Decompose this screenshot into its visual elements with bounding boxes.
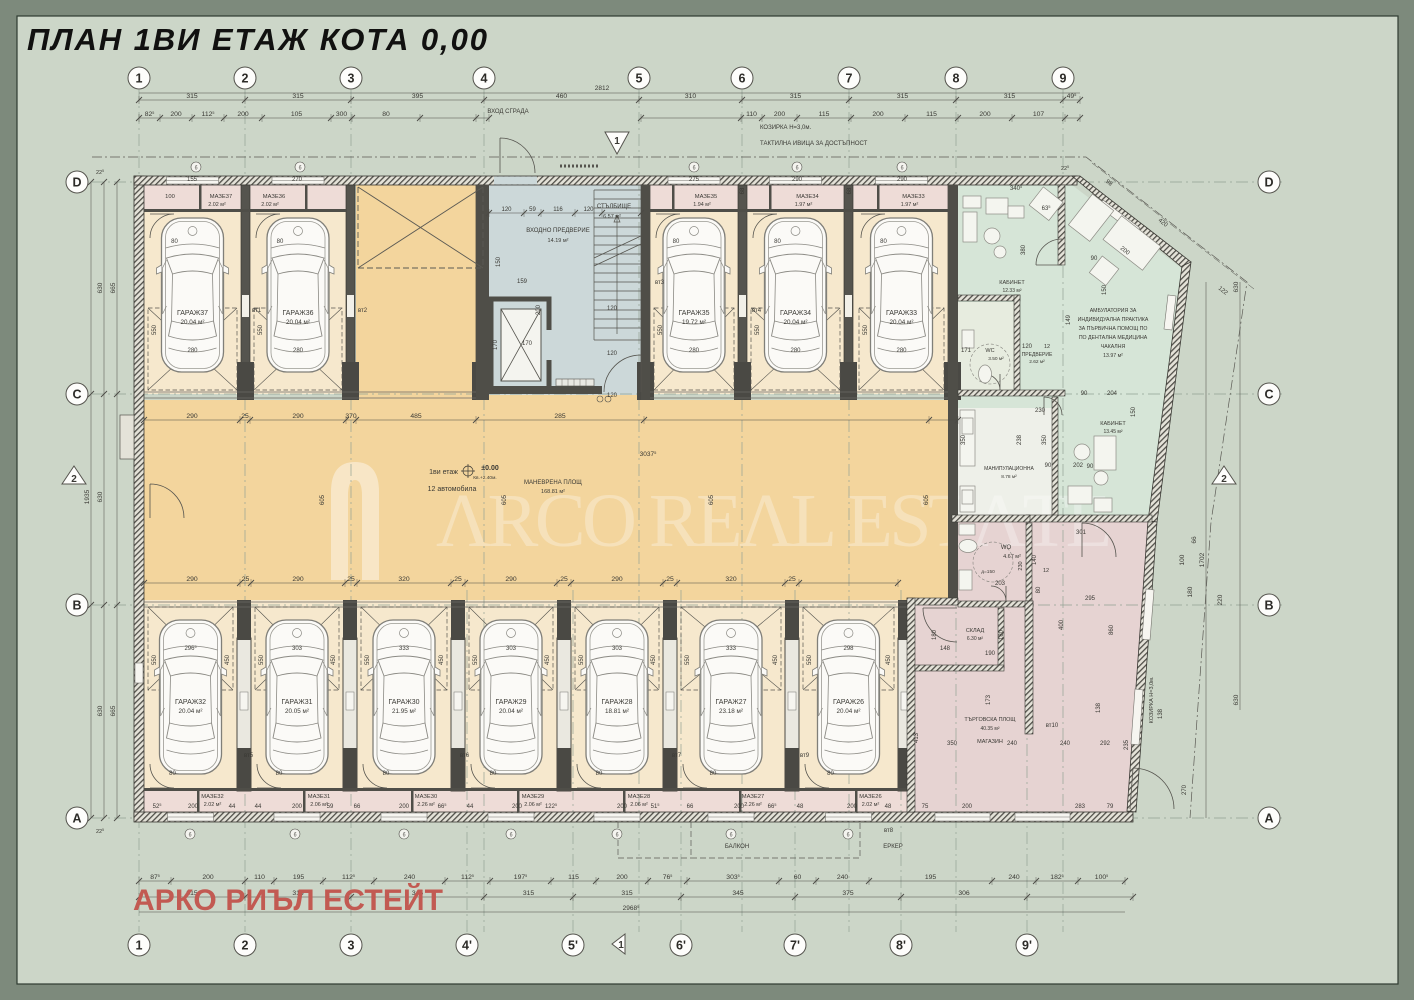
- svg-text:ГАРАЖ35: ГАРАЖ35: [678, 310, 709, 317]
- svg-text:630: 630: [97, 705, 104, 716]
- svg-text:550: 550: [259, 654, 265, 665]
- svg-text:8.78 м²: 8.78 м²: [1001, 474, 1017, 480]
- svg-text:ГАРАЖ36: ГАРАЖ36: [282, 310, 313, 317]
- svg-text:860: 860: [1109, 624, 1115, 635]
- svg-text:315: 315: [790, 93, 802, 100]
- svg-text:450: 450: [545, 654, 551, 665]
- svg-text:60: 60: [794, 874, 802, 881]
- svg-text:80: 80: [673, 239, 680, 245]
- svg-text:148: 148: [940, 646, 951, 652]
- svg-text:605: 605: [924, 494, 930, 505]
- svg-text:290: 290: [792, 177, 803, 183]
- svg-text:вт10: вт10: [1046, 723, 1059, 729]
- svg-text:б: б: [299, 166, 302, 172]
- svg-text:298: 298: [843, 646, 854, 652]
- svg-text:159: 159: [517, 279, 528, 285]
- svg-text:C: C: [1264, 388, 1273, 402]
- svg-text:вт1: вт1: [252, 308, 262, 314]
- svg-text:149: 149: [1066, 314, 1072, 325]
- svg-text:485: 485: [410, 413, 422, 420]
- svg-text:вт9: вт9: [800, 753, 810, 759]
- svg-text:КАБИНЕТ: КАБИНЕТ: [1100, 421, 1126, 427]
- svg-text:90: 90: [1087, 464, 1094, 470]
- svg-text:МАЗЕ28: МАЗЕ28: [628, 794, 650, 800]
- svg-text:303: 303: [292, 646, 303, 652]
- svg-text:150: 150: [496, 256, 502, 267]
- svg-text:80: 80: [827, 771, 834, 777]
- svg-text:195: 195: [293, 874, 305, 881]
- svg-text:б: б: [693, 166, 696, 172]
- svg-text:13.45 м²: 13.45 м²: [1103, 429, 1122, 435]
- svg-text:303: 303: [612, 646, 623, 652]
- svg-text:550: 550: [807, 654, 813, 665]
- svg-text:230: 230: [1018, 561, 1024, 570]
- svg-text:605: 605: [709, 494, 715, 505]
- svg-text:2: 2: [1221, 474, 1227, 485]
- svg-text:450: 450: [886, 654, 892, 665]
- svg-text:2.26 м²: 2.26 м²: [744, 802, 762, 808]
- svg-text:20.04 м²: 20.04 м²: [499, 708, 523, 715]
- svg-text:120: 120: [607, 393, 618, 399]
- svg-text:200: 200: [616, 874, 628, 881]
- svg-text:1: 1: [614, 136, 620, 147]
- svg-text:195: 195: [925, 874, 937, 881]
- svg-text:630: 630: [1233, 281, 1240, 292]
- svg-text:48: 48: [885, 804, 892, 810]
- svg-text:2812: 2812: [595, 85, 610, 92]
- svg-text:20.04 м²: 20.04 м²: [784, 319, 808, 326]
- svg-text:204: 204: [1107, 391, 1118, 397]
- svg-text:7: 7: [846, 72, 853, 86]
- svg-text:310: 310: [685, 93, 697, 100]
- svg-text:550: 550: [473, 654, 479, 665]
- svg-text:380: 380: [1021, 244, 1027, 255]
- svg-text:A: A: [72, 812, 81, 826]
- svg-text:68: 68: [847, 187, 853, 194]
- svg-text:303: 303: [506, 646, 517, 652]
- svg-text:ГАРАЖ28: ГАРАЖ28: [601, 699, 632, 706]
- svg-text:ВХОДНО ПРЕДВЕРИЕ: ВХОДНО ПРЕДВЕРИЕ: [526, 228, 590, 234]
- svg-text:315: 315: [1004, 93, 1016, 100]
- svg-text:б: б: [510, 833, 513, 839]
- svg-text:МАЗЕ26: МАЗЕ26: [859, 794, 881, 800]
- svg-text:550: 550: [152, 654, 158, 665]
- svg-text:168.81 м²: 168.81 м²: [541, 489, 565, 495]
- svg-text:6': 6': [676, 939, 686, 953]
- svg-text:12.33 м²: 12.33 м²: [1002, 288, 1021, 294]
- svg-text:315: 315: [186, 93, 198, 100]
- svg-text:МАЗЕ34: МАЗЕ34: [796, 194, 819, 200]
- svg-text:б: б: [901, 166, 904, 172]
- svg-text:100: 100: [1179, 554, 1186, 565]
- svg-text:200: 200: [188, 804, 199, 810]
- svg-text:200: 200: [237, 111, 249, 118]
- svg-text:460: 460: [556, 93, 568, 100]
- svg-text:280: 280: [790, 348, 801, 354]
- svg-text:240: 240: [1008, 874, 1020, 881]
- svg-text:±0.00: ±0.00: [481, 465, 499, 472]
- svg-text:ЗА ПЪРВИЧНА ПОМОЩ ПО: ЗА ПЪРВИЧНА ПОМОЩ ПО: [1079, 326, 1148, 332]
- svg-text:7': 7': [790, 939, 800, 953]
- svg-text:19.72 м²: 19.72 м²: [682, 319, 706, 326]
- svg-text:1: 1: [136, 939, 143, 953]
- svg-text:D: D: [1264, 176, 1273, 190]
- svg-text:202: 202: [1073, 463, 1084, 469]
- svg-text:8': 8': [896, 939, 906, 953]
- svg-text:6.57 м²: 6.57 м²: [603, 214, 621, 220]
- svg-text:350: 350: [1042, 434, 1048, 445]
- svg-text:20.04 м²: 20.04 м²: [837, 708, 861, 715]
- svg-text:2.02 м²: 2.02 м²: [261, 202, 279, 208]
- svg-text:1: 1: [618, 940, 624, 951]
- svg-text:80: 80: [880, 239, 887, 245]
- svg-text:180: 180: [1187, 586, 1194, 597]
- svg-text:79: 79: [1107, 804, 1114, 810]
- svg-text:200: 200: [512, 804, 523, 810]
- svg-text:90: 90: [1091, 256, 1098, 262]
- svg-text:21.95 м²: 21.95 м²: [392, 708, 416, 715]
- svg-text:1.94 м²: 1.94 м²: [693, 202, 711, 208]
- svg-text:вт7: вт7: [672, 753, 682, 759]
- svg-text:90: 90: [1081, 391, 1088, 397]
- svg-text:25: 25: [454, 576, 462, 583]
- svg-text:80: 80: [383, 771, 390, 777]
- svg-text:ГАРАЖ29: ГАРАЖ29: [495, 699, 526, 706]
- svg-text:2.06 м²: 2.06 м²: [524, 802, 542, 808]
- svg-text:КАБИНЕТ: КАБИНЕТ: [999, 280, 1025, 286]
- svg-text:550: 550: [258, 324, 264, 335]
- svg-text:200: 200: [617, 804, 628, 810]
- svg-text:115: 115: [568, 874, 579, 881]
- svg-text:605: 605: [320, 494, 326, 505]
- svg-text:Кв.+2.40м.: Кв.+2.40м.: [473, 475, 496, 481]
- svg-text:115: 115: [926, 111, 937, 118]
- svg-text:290: 290: [505, 576, 517, 583]
- svg-text:238: 238: [1017, 434, 1023, 445]
- svg-text:АРКО РИЪЛ ЕСТЕЙТ: АРКО РИЪЛ ЕСТЕЙТ: [133, 883, 443, 917]
- svg-text:450: 450: [331, 654, 337, 665]
- svg-text:ГАРАЖ32: ГАРАЖ32: [175, 699, 206, 706]
- svg-text:1: 1: [136, 72, 143, 86]
- svg-text:400: 400: [1059, 619, 1065, 630]
- svg-text:КОЗИРКА Н=3,0м.: КОЗИРКА Н=3,0м.: [1149, 676, 1155, 723]
- svg-text:75: 75: [922, 804, 929, 810]
- svg-text:2.06 м²: 2.06 м²: [630, 802, 648, 808]
- svg-text:D: D: [72, 176, 81, 190]
- svg-text:200: 200: [202, 874, 214, 881]
- svg-text:315: 315: [621, 890, 633, 897]
- svg-text:395: 395: [412, 93, 424, 100]
- svg-text:120: 120: [1022, 344, 1033, 350]
- svg-text:280: 280: [896, 348, 907, 354]
- svg-text:105: 105: [291, 111, 303, 118]
- svg-text:200: 200: [872, 111, 884, 118]
- svg-text:665: 665: [110, 705, 117, 716]
- svg-text:ЧАКАЛНЯ: ЧАКАЛНЯ: [1101, 344, 1126, 350]
- svg-text:280: 280: [689, 348, 700, 354]
- svg-text:МАГАЗИН: МАГАЗИН: [977, 739, 1003, 745]
- svg-text:200: 200: [734, 804, 745, 810]
- svg-text:550: 550: [755, 324, 761, 335]
- svg-text:20.04 м²: 20.04 м²: [179, 708, 203, 715]
- svg-text:120: 120: [501, 207, 512, 213]
- svg-text:375: 375: [842, 890, 854, 897]
- svg-text:25: 25: [242, 576, 250, 583]
- svg-text:200: 200: [292, 804, 303, 810]
- svg-text:345: 345: [732, 890, 744, 897]
- svg-text:МАЗЕ29: МАЗЕ29: [522, 794, 544, 800]
- svg-text:80: 80: [596, 771, 603, 777]
- svg-text:333: 333: [726, 646, 737, 652]
- svg-text:80: 80: [774, 239, 781, 245]
- svg-text:240: 240: [1060, 741, 1071, 747]
- svg-text:173: 173: [986, 694, 992, 705]
- svg-text:203: 203: [995, 581, 1006, 587]
- svg-text:450: 450: [225, 654, 231, 665]
- svg-text:44: 44: [255, 804, 262, 810]
- svg-text:МАЗЕ33: МАЗЕ33: [902, 194, 924, 200]
- svg-text:б: б: [189, 833, 192, 839]
- svg-text:270: 270: [292, 177, 303, 183]
- svg-text:2.62 м²: 2.62 м²: [1029, 359, 1045, 365]
- svg-text:630: 630: [1233, 694, 1240, 705]
- svg-text:вт3: вт3: [655, 280, 665, 286]
- svg-text:270: 270: [1182, 784, 1188, 795]
- svg-text:240: 240: [404, 874, 416, 881]
- svg-text:170: 170: [493, 339, 499, 350]
- svg-text:550: 550: [658, 324, 664, 335]
- svg-text:2: 2: [71, 474, 77, 485]
- svg-text:20.05 м²: 20.05 м²: [285, 708, 309, 715]
- svg-text:МАЗЕ31: МАЗЕ31: [308, 794, 330, 800]
- svg-text:25: 25: [347, 576, 355, 583]
- svg-text:2.06 м²: 2.06 м²: [310, 802, 328, 808]
- svg-text:285: 285: [554, 413, 566, 420]
- svg-text:1.97 м²: 1.97 м²: [795, 202, 813, 208]
- svg-text:230: 230: [1035, 408, 1046, 414]
- svg-text:б: б: [294, 833, 297, 839]
- svg-text:290: 290: [186, 576, 198, 583]
- svg-text:115: 115: [819, 111, 830, 118]
- svg-text:665: 665: [110, 282, 117, 293]
- svg-text:20.04 м²: 20.04 м²: [286, 319, 310, 326]
- svg-text:ГАРАЖ26: ГАРАЖ26: [833, 699, 864, 706]
- svg-text:140: 140: [1032, 554, 1038, 565]
- svg-text:292: 292: [1100, 741, 1111, 747]
- svg-text:107: 107: [1033, 111, 1045, 118]
- svg-text:3.50 м²: 3.50 м²: [988, 356, 1004, 362]
- svg-text:2.26 м²: 2.26 м²: [417, 802, 435, 808]
- svg-text:12 автомобила: 12 автомобила: [428, 485, 477, 493]
- svg-text:ИНДИВИДУАЛНА ПРАКТИКА: ИНДИВИДУАЛНА ПРАКТИКА: [1078, 317, 1149, 323]
- svg-text:200: 200: [399, 804, 410, 810]
- svg-text:6: 6: [739, 72, 746, 86]
- svg-text:80: 80: [382, 111, 390, 118]
- svg-text:80: 80: [169, 771, 176, 777]
- svg-text:290: 290: [611, 576, 623, 583]
- svg-text:90: 90: [1045, 463, 1052, 469]
- svg-text:ТАКТИЛНА ИВИЦА ЗА ДОСТЪПНОСТ: ТАКТИЛНА ИВИЦА ЗА ДОСТЪПНОСТ: [760, 141, 868, 147]
- svg-text:333: 333: [399, 646, 410, 652]
- svg-text:290: 290: [292, 413, 304, 420]
- svg-text:25: 25: [666, 576, 674, 583]
- svg-text:3: 3: [348, 939, 355, 953]
- svg-text:450: 450: [651, 654, 657, 665]
- svg-text:180: 180: [932, 629, 938, 640]
- svg-text:9': 9': [1022, 939, 1032, 953]
- svg-text:6.30 м²: 6.30 м²: [967, 636, 984, 642]
- svg-text:240: 240: [837, 874, 849, 881]
- svg-text:5': 5': [568, 939, 578, 953]
- svg-text:5: 5: [636, 72, 643, 86]
- svg-text:280: 280: [293, 348, 304, 354]
- svg-text:2: 2: [242, 72, 249, 86]
- svg-text:б: б: [616, 833, 619, 839]
- svg-text:д=150: д=150: [981, 569, 995, 575]
- svg-text:413: 413: [914, 732, 920, 743]
- svg-text:B: B: [72, 599, 81, 613]
- svg-text:280: 280: [187, 348, 198, 354]
- svg-text:МАЗЕ30: МАЗЕ30: [415, 794, 437, 800]
- svg-text:301: 301: [1076, 530, 1087, 536]
- svg-text:150: 150: [1102, 284, 1108, 295]
- svg-text:59: 59: [327, 804, 334, 810]
- svg-text:б: б: [730, 833, 733, 839]
- svg-text:8: 8: [953, 72, 960, 86]
- svg-text:120: 120: [607, 351, 618, 357]
- svg-text:МАЗЕ37: МАЗЕ37: [210, 194, 232, 200]
- svg-text:80: 80: [276, 771, 283, 777]
- svg-text:315: 315: [292, 93, 304, 100]
- svg-text:120: 120: [583, 207, 594, 213]
- svg-text:48: 48: [797, 804, 804, 810]
- svg-text:66: 66: [687, 804, 694, 810]
- svg-text:25: 25: [241, 413, 249, 420]
- svg-text:110: 110: [746, 111, 757, 118]
- svg-text:80: 80: [1036, 586, 1042, 593]
- svg-text:1935: 1935: [84, 489, 91, 504]
- svg-text:200: 200: [774, 111, 786, 118]
- svg-text:44: 44: [467, 804, 474, 810]
- svg-text:4: 4: [481, 72, 488, 86]
- svg-text:ВХОД СГРАДА: ВХОД СГРАДА: [487, 109, 528, 115]
- svg-text:2.02 м²: 2.02 м²: [862, 802, 880, 808]
- svg-text:WO: WO: [1001, 545, 1012, 551]
- svg-text:66: 66: [1191, 536, 1198, 544]
- svg-text:ГАРАЖ33: ГАРАЖ33: [886, 310, 917, 317]
- svg-text:120: 120: [607, 306, 618, 312]
- svg-text:315: 315: [523, 890, 535, 897]
- svg-text:1ви етаж: 1ви етаж: [429, 469, 458, 476]
- svg-text:190: 190: [985, 651, 996, 657]
- svg-text:2.02 м²: 2.02 м²: [204, 802, 222, 808]
- svg-text:25: 25: [560, 576, 568, 583]
- svg-text:2: 2: [242, 939, 249, 953]
- svg-text:40.35 м²: 40.35 м²: [980, 726, 999, 732]
- svg-text:СТЪЛБИЩЕ: СТЪЛБИЩЕ: [597, 204, 631, 210]
- svg-text:290: 290: [897, 177, 908, 183]
- svg-text:ПО ДЕНТАЛНА МЕДИЦИНА: ПО ДЕНТАЛНА МЕДИЦИНА: [1079, 335, 1148, 341]
- svg-text:550: 550: [685, 654, 691, 665]
- svg-text:200: 200: [962, 804, 973, 810]
- svg-text:МАНЕВРЕНА ПЛОЩ: МАНЕВРЕНА ПЛОЩ: [524, 480, 582, 486]
- svg-text:550: 550: [152, 324, 158, 335]
- svg-text:235: 235: [1124, 739, 1130, 750]
- svg-text:ГАРАЖ27: ГАРАЖ27: [715, 699, 746, 706]
- svg-text:68: 68: [740, 187, 746, 194]
- svg-text:ГАРАЖ37: ГАРАЖ37: [177, 310, 208, 317]
- svg-text:220: 220: [1217, 594, 1224, 605]
- svg-text:ТЪРГОВСКА ПЛОЩ: ТЪРГОВСКА ПЛОЩ: [964, 717, 1015, 723]
- svg-text:ЕРКЕР: ЕРКЕР: [883, 844, 903, 850]
- svg-text:44: 44: [229, 804, 236, 810]
- svg-text:450: 450: [773, 654, 779, 665]
- svg-text:320: 320: [725, 576, 737, 583]
- svg-text:80: 80: [277, 239, 284, 245]
- svg-text:23.18 м²: 23.18 м²: [719, 708, 743, 715]
- svg-text:СКЛАД: СКЛАД: [966, 628, 985, 634]
- svg-text:20.04 м²: 20.04 м²: [181, 319, 205, 326]
- svg-text:200: 200: [847, 804, 858, 810]
- svg-text:вт5: вт5: [244, 753, 254, 759]
- svg-text:WC: WC: [985, 348, 994, 354]
- svg-text:вт8: вт8: [884, 828, 894, 834]
- svg-text:1702: 1702: [1199, 552, 1206, 567]
- svg-text:300: 300: [336, 111, 348, 118]
- svg-text:80: 80: [171, 239, 178, 245]
- svg-text:200: 200: [536, 304, 542, 315]
- svg-text:КОЗИРКА Н=3,0м.: КОЗИРКА Н=3,0м.: [760, 125, 812, 131]
- svg-text:138: 138: [1158, 708, 1164, 719]
- svg-text:4.67 м²: 4.67 м²: [1003, 554, 1021, 560]
- svg-text:150: 150: [1131, 406, 1137, 417]
- svg-text:290: 290: [292, 576, 304, 583]
- svg-text:1.97 м²: 1.97 м²: [901, 202, 919, 208]
- svg-text:180: 180: [999, 629, 1005, 640]
- svg-text:МАЗЕ35: МАЗЕ35: [695, 194, 717, 200]
- svg-text:59: 59: [529, 207, 536, 213]
- svg-text:ГАРАЖ34: ГАРАЖ34: [780, 310, 811, 317]
- svg-text:ГАРАЖ31: ГАРАЖ31: [281, 699, 312, 706]
- svg-text:4': 4': [462, 939, 472, 953]
- svg-text:171: 171: [961, 348, 972, 354]
- svg-text:350: 350: [961, 434, 967, 445]
- svg-text:295: 295: [1085, 596, 1096, 602]
- svg-text:170: 170: [522, 341, 533, 347]
- svg-text:вт6: вт6: [460, 753, 470, 759]
- svg-text:МАЗЕ32: МАЗЕ32: [201, 794, 223, 800]
- svg-text:25: 25: [788, 576, 796, 583]
- svg-text:МАНИПУЛАЦИОННА: МАНИПУЛАЦИОННА: [984, 466, 1034, 472]
- svg-text:630: 630: [97, 491, 104, 502]
- svg-text:БАЛКОН: БАЛКОН: [725, 844, 749, 850]
- svg-text:МАЗЕ36: МАЗЕ36: [263, 194, 285, 200]
- svg-text:АМБУЛАТОРИЯ ЗА: АМБУЛАТОРИЯ ЗА: [1090, 308, 1137, 314]
- svg-text:б: б: [403, 833, 406, 839]
- svg-text:550: 550: [863, 324, 869, 335]
- svg-text:450: 450: [439, 654, 445, 665]
- svg-text:18.81 м²: 18.81 м²: [605, 708, 629, 715]
- svg-text:200: 200: [170, 111, 182, 118]
- svg-text:ПРЕДВЕРИЕ: ПРЕДВЕРИЕ: [1022, 352, 1053, 358]
- svg-text:370: 370: [345, 413, 357, 420]
- svg-text:б: б: [796, 166, 799, 172]
- svg-text:275: 275: [689, 177, 700, 183]
- svg-text:155: 155: [187, 177, 198, 183]
- svg-text:б: б: [195, 166, 198, 172]
- svg-text:13.97 м²: 13.97 м²: [1103, 353, 1123, 359]
- svg-text:630: 630: [97, 282, 104, 293]
